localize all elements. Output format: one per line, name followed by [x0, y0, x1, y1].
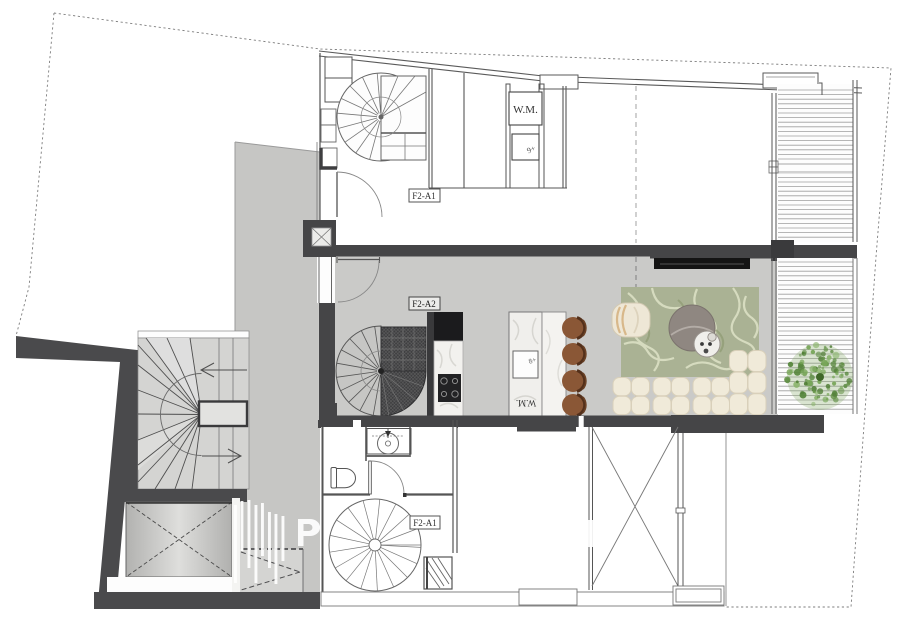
svg-text:W.M.: W.M. — [513, 104, 538, 116]
svg-text:W.M.: W.M. — [516, 398, 536, 408]
svg-text:F2-A2: F2-A2 — [412, 299, 436, 309]
svg-text:F2-A1: F2-A1 — [412, 191, 436, 201]
svg-text:F2-A1: F2-A1 — [413, 518, 437, 528]
